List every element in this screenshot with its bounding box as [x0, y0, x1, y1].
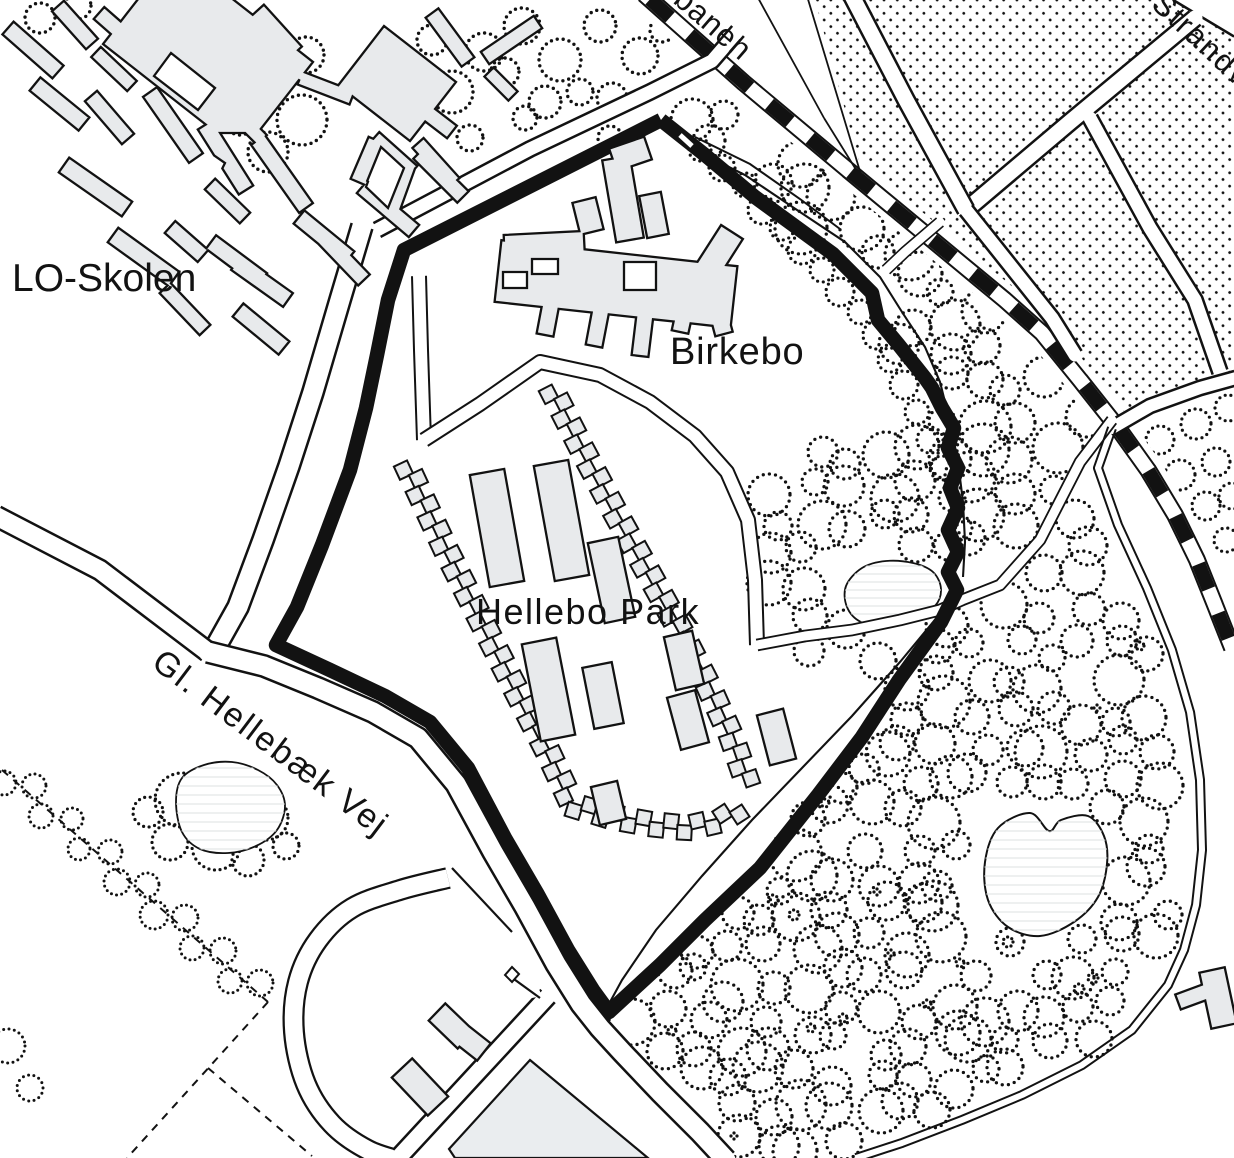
svg-text:LO-Skolen: LO-Skolen — [12, 257, 196, 300]
svg-text:Birkebo: Birkebo — [670, 331, 804, 373]
svg-text:Hellebo Park: Hellebo Park — [476, 591, 700, 632]
